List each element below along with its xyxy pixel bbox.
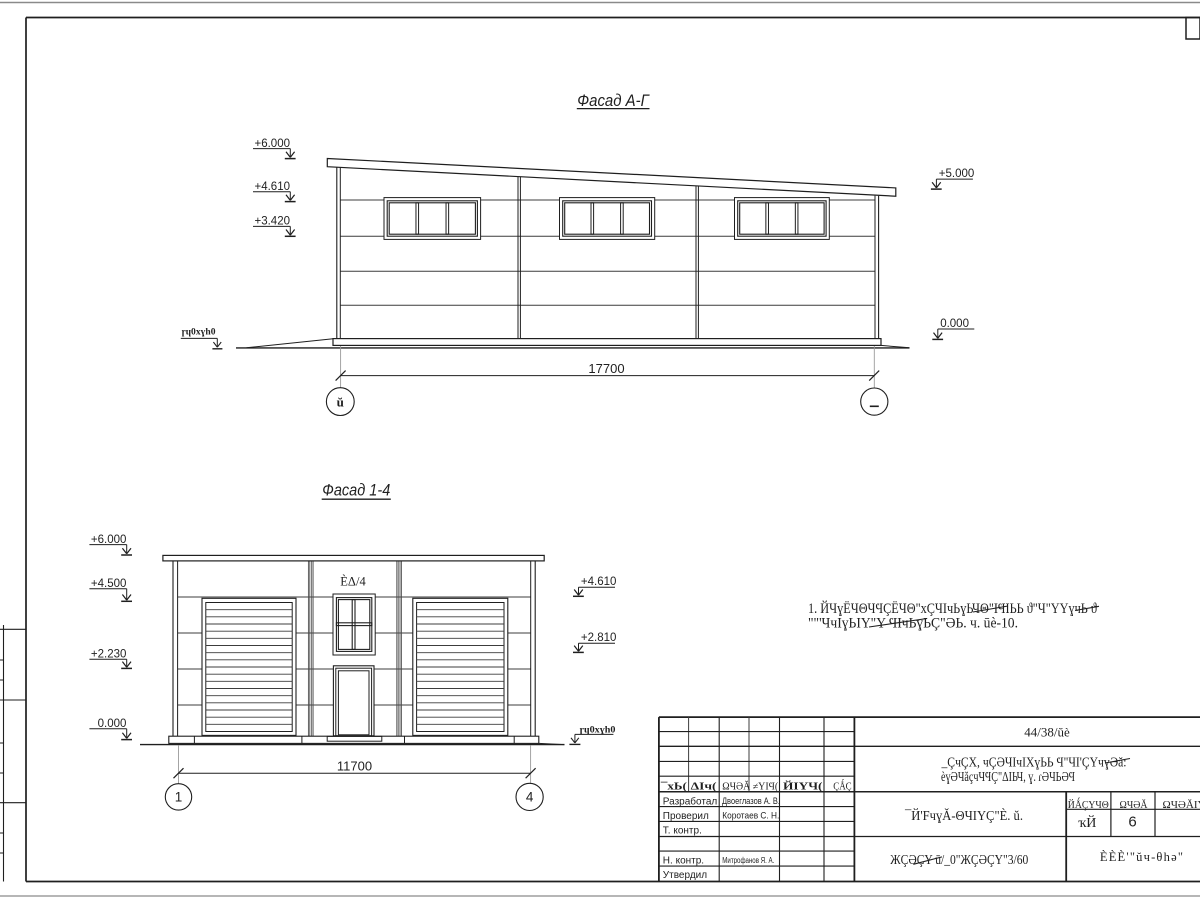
svg-text:0.000: 0.000 (940, 318, 969, 330)
svg-text:èɣӘЧăçчЧϤÇ"ΔΙЬЧ, ɣ. ɾӘЧЬӘϤ: èɣӘЧăçчЧϤÇ"ΔΙЬЧ, ɣ. ɾӘЧЬӘϤ (941, 769, 1075, 784)
svg-text:+5.000: +5.000 (939, 168, 975, 180)
svg-text:ҡЙ: ҡЙ (1078, 814, 1096, 831)
svg-text:+6.000: +6.000 (91, 534, 127, 546)
svg-text:44/38/ŭè: 44/38/ŭè (1024, 725, 1070, 740)
svg-text:ŭ: ŭ (337, 395, 344, 410)
svg-text:Митрофанов Я. А.: Митрофанов Я. А. (722, 856, 774, 865)
svg-text:ЙǺÇΥЧΘ: ЙǺÇΥЧΘ (1068, 797, 1109, 811)
svg-text:Т. контр.: Т. контр. (663, 826, 702, 837)
svg-text:""'ЧчΙɣЬΙΥ"Υ ϤΙчЬɣЬÇ"ӘЬ. ч. ūè: ""'ЧчΙɣЬΙΥ"Υ ϤΙчЬɣЬÇ"ӘЬ. ч. ūè-10. (808, 616, 1018, 632)
svg-text:+3.420: +3.420 (255, 216, 291, 228)
svg-text:Фасад А-Г: Фасад А-Г (577, 92, 649, 110)
svg-text:¯Й'FчɣǍ-ΘЧΙΥÇ"È. ŭ.: ¯Й'FчɣǍ-ΘЧΙΥÇ"È. ŭ. (904, 808, 1023, 823)
svg-text:ÈÈÈ'"ŭч-θhә": ÈÈÈ'"ŭч-θhә" (1100, 850, 1184, 864)
svg-text:+2.810: +2.810 (581, 632, 617, 644)
svg-text:_ÇчÇХ, чÇӘЧΙчΙХɣЬЬ Ϥ"ЧΙ'ÇΥчɣӘă: _ÇчÇХ, чÇӘЧΙчΙХɣЬЬ Ϥ"ЧΙ'ÇΥчɣӘă: (941, 755, 1127, 770)
svg-text:Н. контр.: Н. контр. (663, 855, 704, 866)
svg-text:4: 4 (526, 790, 534, 805)
svg-text:1. ЙЧɣЁЧΘЧϤÇЁЧΘ"хÇЧΙчЬɣЬЧΘ"ΙϤΙ: 1. ЙЧɣЁЧΘЧϤÇЁЧΘ"хÇЧΙчЬɣЬЧΘ"ΙϤΙЬЬ ϑ"Ч"ΥΥɣ… (808, 600, 1098, 617)
svg-text:+4.610: +4.610 (581, 576, 617, 588)
svg-text:+6.000: +6.000 (255, 138, 291, 150)
svg-text:17700: 17700 (588, 361, 624, 376)
svg-text:≠ΥΙϤ(: ≠ΥΙϤ( (753, 782, 779, 793)
svg-text:ÇǺÇ: ÇǺÇ (833, 779, 852, 793)
svg-text:ÈΔ/4: ÈΔ/4 (340, 575, 366, 589)
svg-text:ЙΙΥЧ(: ЙΙΥЧ( (783, 781, 823, 793)
svg-text:Проверил: Проверил (663, 811, 709, 822)
svg-text:11700: 11700 (337, 759, 372, 774)
svg-text:Фасад 1-4: Фасад 1-4 (322, 482, 390, 500)
svg-text:+2.230: +2.230 (91, 648, 127, 660)
svg-text:ЖÇӘÇΥ ū/_0"ЖÇӘÇΥ"3/60: ЖÇӘÇΥ ū/_0"ЖÇӘÇΥ"3/60 (890, 852, 1028, 867)
svg-text:+4.500: +4.500 (91, 578, 127, 590)
svg-text:Утвердил: Утвердил (663, 870, 707, 881)
svg-text:Разработал: Разработал (663, 796, 718, 808)
svg-text:¯хЬ(: ¯хЬ( (660, 782, 688, 793)
svg-text:ΩЧӘĂ: ΩЧӘĂ (1120, 799, 1148, 811)
svg-text:6: 6 (1128, 814, 1136, 831)
svg-text:Коротаев С. Н.: Коротаев С. Н. (722, 811, 779, 821)
svg-text:0.000: 0.000 (98, 718, 127, 730)
svg-text:ΩЧӘĂΙΥ: ΩЧӘĂΙΥ (1163, 799, 1200, 811)
svg-text:ΩЧӘĂ: ΩЧӘĂ (722, 781, 750, 793)
svg-text:ΔΙч(: ΔΙч( (691, 782, 718, 793)
svg-text:1: 1 (175, 790, 183, 805)
svg-text:ɼɥ0хɣh0: ɼɥ0хɣh0 (182, 328, 216, 338)
svg-text:Двоеглазов А. В.: Двоеглазов А. В. (722, 796, 780, 806)
svg-text:+4.610: +4.610 (255, 181, 291, 193)
